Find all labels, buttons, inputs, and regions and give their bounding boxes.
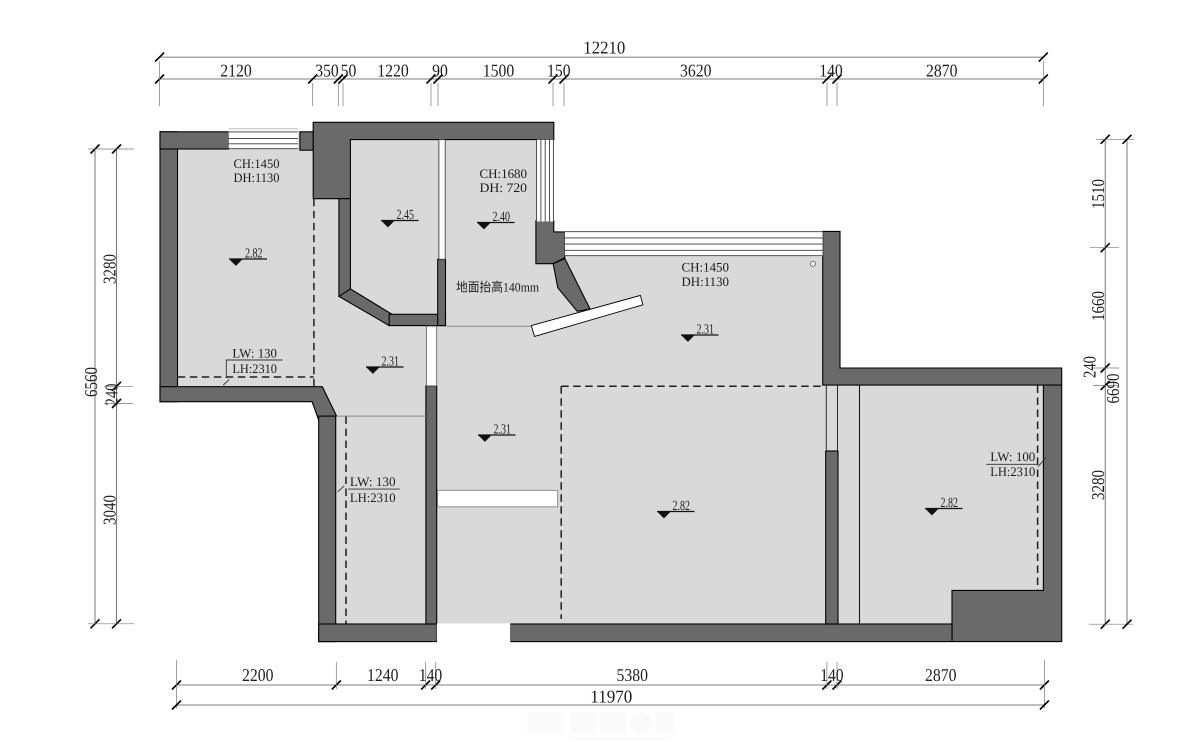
svg-text:LH:2310: LH:2310 bbox=[232, 361, 277, 376]
svg-text:1500: 1500 bbox=[483, 60, 515, 80]
svg-text:DH:1130: DH:1130 bbox=[234, 170, 280, 185]
svg-text:地面抬高140mm: 地面抬高140mm bbox=[456, 280, 539, 295]
svg-text:LW: 130: LW: 130 bbox=[350, 474, 396, 489]
svg-text:240: 240 bbox=[1080, 356, 1100, 378]
svg-text:240: 240 bbox=[102, 384, 122, 406]
svg-text:2120: 2120 bbox=[220, 60, 252, 80]
svg-text:2.45: 2.45 bbox=[397, 208, 415, 223]
svg-text:CH:1450: CH:1450 bbox=[682, 260, 730, 275]
svg-text:6690: 6690 bbox=[1103, 374, 1123, 404]
svg-text:1240: 1240 bbox=[367, 665, 399, 685]
svg-text:3280: 3280 bbox=[1088, 470, 1108, 500]
svg-text:140: 140 bbox=[819, 60, 843, 80]
svg-text:LW: 130: LW: 130 bbox=[232, 346, 277, 361]
svg-text:90: 90 bbox=[432, 60, 448, 80]
svg-text:140: 140 bbox=[820, 665, 844, 685]
svg-text:150: 150 bbox=[547, 60, 571, 80]
svg-text:1510: 1510 bbox=[1088, 179, 1108, 209]
svg-text:LH:2310: LH:2310 bbox=[990, 464, 1035, 479]
svg-text:2870: 2870 bbox=[925, 665, 957, 685]
svg-text:LW: 100: LW: 100 bbox=[990, 449, 1035, 464]
svg-text:2.82: 2.82 bbox=[941, 496, 959, 511]
svg-text:DH:1130: DH:1130 bbox=[682, 274, 730, 289]
svg-text:DH: 720: DH: 720 bbox=[480, 180, 528, 195]
svg-text:2.82: 2.82 bbox=[245, 246, 263, 261]
svg-text:LH:2310: LH:2310 bbox=[350, 490, 396, 505]
svg-text:2200: 2200 bbox=[242, 665, 274, 685]
svg-text:2.82: 2.82 bbox=[673, 499, 691, 514]
svg-text:CH:1450: CH:1450 bbox=[234, 156, 280, 171]
svg-text:3620: 3620 bbox=[680, 60, 712, 80]
svg-text:3040: 3040 bbox=[100, 495, 120, 525]
svg-text:2.31: 2.31 bbox=[697, 322, 715, 337]
svg-text:2.31: 2.31 bbox=[494, 422, 512, 437]
svg-text:2870: 2870 bbox=[926, 60, 958, 80]
svg-text:CH:1680: CH:1680 bbox=[480, 166, 528, 181]
svg-text:2.40: 2.40 bbox=[493, 210, 511, 225]
svg-text:12210: 12210 bbox=[583, 37, 625, 57]
svg-text:50: 50 bbox=[341, 60, 357, 80]
svg-text:140: 140 bbox=[419, 665, 443, 685]
svg-text:1660: 1660 bbox=[1088, 291, 1108, 321]
svg-text:1220: 1220 bbox=[377, 60, 409, 80]
svg-text:6560: 6560 bbox=[81, 367, 101, 397]
svg-text:2.31: 2.31 bbox=[382, 354, 400, 369]
svg-text:5380: 5380 bbox=[617, 665, 649, 685]
svg-text:11970: 11970 bbox=[590, 687, 632, 707]
svg-text:3280: 3280 bbox=[100, 254, 120, 284]
svg-text:350: 350 bbox=[315, 60, 339, 80]
